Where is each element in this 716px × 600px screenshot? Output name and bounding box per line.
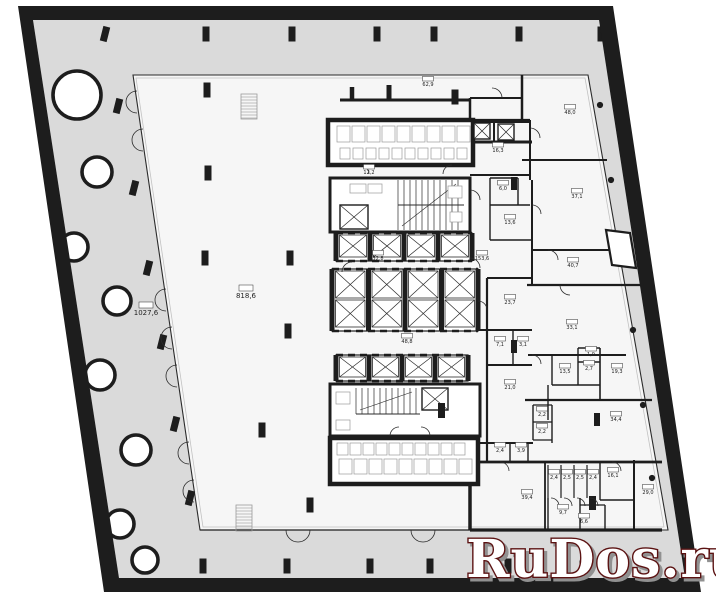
round-column	[121, 435, 151, 465]
room-tag-box	[505, 214, 516, 219]
column	[427, 559, 434, 574]
furniture-item	[402, 443, 413, 455]
column	[516, 27, 523, 42]
furniture-item	[339, 459, 352, 474]
round-column	[85, 360, 115, 390]
room-tag-box	[239, 285, 253, 291]
round-column	[103, 287, 131, 315]
room-area-label: 16,3	[492, 148, 503, 154]
utility-bar	[511, 177, 517, 190]
room-area-label: 13,6	[504, 220, 515, 226]
room-tag-box	[643, 484, 654, 489]
room-area-label: 7,1	[496, 342, 504, 348]
room-tag-box	[586, 346, 597, 351]
room-tag-box	[549, 469, 560, 474]
room-tag-box	[572, 188, 583, 193]
furniture-item	[429, 459, 442, 474]
room-area-label: 818,6	[236, 292, 257, 300]
room-tag-box	[364, 164, 375, 169]
room-area-label: 2,2	[538, 412, 546, 418]
room-tag-box	[505, 379, 516, 384]
furniture-item	[431, 148, 441, 159]
furniture-item	[448, 186, 462, 198]
shaft-pier	[433, 355, 438, 381]
shaft-pier	[366, 269, 371, 331]
furniture-item	[384, 459, 397, 474]
furniture-item	[369, 459, 382, 474]
room-tag-box	[579, 513, 590, 518]
room-area-label: 21,0	[504, 385, 515, 391]
room-tag-box	[612, 363, 623, 368]
slanted-shaft	[606, 230, 636, 268]
room-tag-box	[495, 442, 506, 447]
shaft-pier	[334, 355, 339, 381]
furniture-item	[399, 459, 412, 474]
shaft-pier	[367, 355, 372, 381]
room-area-label: 2,4	[496, 448, 504, 454]
room-tag-box	[560, 363, 571, 368]
furniture-item	[353, 148, 363, 159]
column	[202, 251, 209, 266]
room-area-label: 33,1	[566, 325, 577, 331]
edge-column	[597, 102, 603, 108]
room-tag-box	[565, 104, 576, 109]
room-area-label: 2,7	[585, 366, 593, 372]
furniture-item	[441, 443, 452, 455]
furniture-item	[392, 148, 402, 159]
shaft-pier	[400, 355, 405, 381]
room-area-label: 13,5	[559, 369, 570, 375]
furniture-item	[414, 459, 427, 474]
room-tag-box	[518, 336, 529, 341]
room-area-label: 6,6	[580, 519, 588, 525]
edge-column	[640, 402, 646, 408]
furniture-item	[352, 126, 365, 142]
shaft-pier	[403, 269, 408, 331]
shaft-pier	[476, 269, 481, 331]
room-area-label: 39,4	[521, 495, 532, 501]
room-tag-box	[562, 469, 573, 474]
room-area-label: 1,9	[587, 352, 595, 358]
round-column	[53, 71, 101, 119]
furniture-item	[457, 148, 467, 159]
furniture-item	[376, 443, 387, 455]
utility-bar	[438, 403, 445, 418]
room-tag-box	[402, 333, 413, 338]
room-tag-box	[522, 489, 533, 494]
room-tag-box	[558, 504, 569, 509]
furniture-item	[366, 148, 376, 159]
furniture-item	[415, 443, 426, 455]
room-area-label: 48,0	[564, 110, 575, 116]
room-tag-box	[584, 360, 595, 365]
floor-plan-image: 62,948,016,36,013,637,140,7153,632,812,2…	[0, 0, 716, 600]
watermark: RuDos.ru RuDos.ru	[466, 529, 716, 593]
room-area-label: 153,6	[475, 256, 489, 262]
furniture-item	[354, 459, 367, 474]
room-tag-box	[477, 250, 488, 255]
furniture-item	[368, 184, 382, 193]
room-area-label: 9,7	[559, 510, 567, 516]
room-area-label: 23,7	[504, 300, 515, 306]
room-tag-box	[495, 336, 506, 341]
furniture-item	[459, 459, 472, 474]
shaft-pier	[402, 233, 407, 261]
room-tag-box	[588, 469, 599, 474]
edge-column	[630, 327, 636, 333]
column	[200, 559, 207, 574]
room-area-label: 62,9	[422, 82, 433, 88]
furniture-item	[382, 126, 395, 142]
stair-block-lower	[330, 384, 480, 436]
furniture-item	[367, 126, 380, 142]
room-area-label: 1027,6	[134, 309, 159, 317]
shaft-pier	[439, 269, 444, 331]
column	[285, 324, 292, 339]
column	[259, 423, 266, 438]
utility-bar	[511, 340, 517, 353]
column	[307, 498, 314, 513]
furniture-item	[418, 148, 428, 159]
column	[287, 251, 294, 266]
shaft-pier	[466, 355, 471, 381]
round-column	[132, 547, 158, 573]
room-tag-box	[608, 467, 619, 472]
furniture-item	[412, 126, 425, 142]
edge-column	[608, 177, 614, 183]
furniture-item	[336, 420, 350, 430]
shaft-pier	[334, 233, 339, 261]
round-column	[82, 157, 112, 187]
room-tag-box	[498, 180, 509, 185]
room-area-label: 16,1	[607, 473, 618, 479]
shaft-pier	[470, 233, 475, 261]
furniture-item	[442, 126, 455, 142]
room-tag-box	[568, 257, 579, 262]
furniture-item	[363, 443, 374, 455]
column	[203, 27, 210, 42]
furniture-item	[397, 126, 410, 142]
room-area-label: 6,0	[499, 186, 507, 192]
utility-bar	[594, 413, 600, 426]
room-area-label: 2,4	[589, 475, 597, 481]
room-area-label: 29,0	[642, 490, 653, 496]
column	[204, 83, 211, 98]
shaft-pier	[436, 233, 441, 261]
floor-plan-screenshot: 62,948,016,36,013,637,140,7153,632,812,2…	[0, 0, 716, 600]
room-tag-box	[373, 250, 384, 255]
furniture-item	[340, 148, 350, 159]
room-area-label: 37,1	[571, 194, 582, 200]
room-tag-box	[139, 302, 153, 308]
column	[452, 90, 459, 105]
room-area-label: 34,4	[610, 417, 621, 423]
column	[367, 559, 374, 574]
furniture-item	[428, 443, 439, 455]
furniture-item	[454, 443, 465, 455]
room-area-label: 19,3	[611, 369, 622, 375]
room-area-label: 2,2	[538, 429, 546, 435]
furniture-item	[379, 148, 389, 159]
furniture-item	[444, 148, 454, 159]
room-tag-box	[611, 411, 622, 416]
column	[374, 27, 381, 42]
room-area-label: 2,4	[550, 475, 558, 481]
column	[431, 27, 438, 42]
room-tag-box	[505, 294, 516, 299]
column	[284, 559, 291, 574]
room-area-label: 2,5	[563, 475, 571, 481]
furniture-item	[450, 212, 462, 222]
room-area-label: 3,9	[517, 448, 525, 454]
room-area-label: 3,1	[519, 342, 527, 348]
furniture-item	[427, 126, 440, 142]
room-area-label: 12,2	[363, 170, 374, 176]
furniture-item	[336, 392, 350, 404]
furniture-item	[350, 184, 366, 193]
furniture-item	[389, 443, 400, 455]
room-tag-box	[493, 142, 504, 147]
column	[289, 27, 296, 42]
room-tag-box	[423, 76, 434, 81]
furniture-item	[405, 148, 415, 159]
furniture-item	[444, 459, 457, 474]
furniture-item	[337, 443, 348, 455]
column	[205, 166, 212, 181]
furniture-item	[457, 126, 470, 142]
furniture-item	[337, 126, 350, 142]
room-tag-box	[575, 469, 586, 474]
room-tag-box	[516, 442, 527, 447]
room-tag-box	[537, 406, 548, 411]
watermark-text: RuDos.ru	[466, 529, 716, 590]
edge-column	[649, 475, 655, 481]
room-area-label: 32,8	[372, 256, 383, 262]
room-area-label: 48,8	[401, 339, 412, 345]
shaft-pier	[330, 269, 335, 331]
furniture-item	[350, 443, 361, 455]
room-tag-box	[537, 423, 548, 428]
room-area-label: 40,7	[567, 263, 578, 269]
room-tag-box	[567, 319, 578, 324]
room-area-label: 2,5	[576, 475, 584, 481]
